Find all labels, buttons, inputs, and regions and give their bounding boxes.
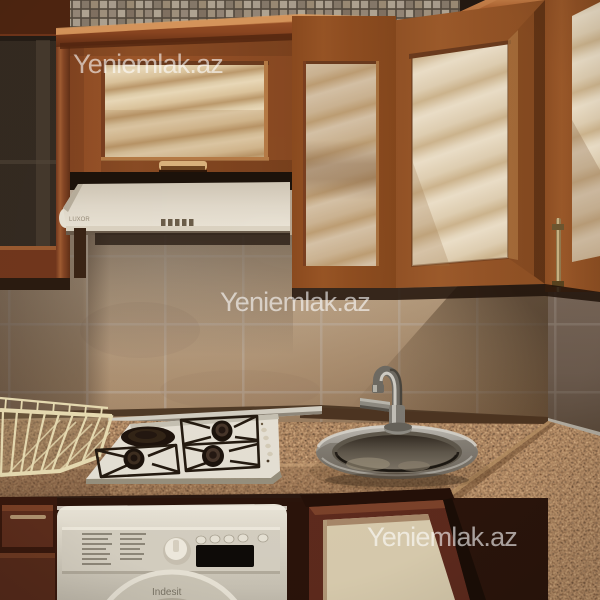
svg-text:Yeniemlak.az: Yeniemlak.az xyxy=(220,287,370,317)
svg-text:Yeniemlak.az: Yeniemlak.az xyxy=(73,49,223,79)
svg-text:Yeniemlak.az: Yeniemlak.az xyxy=(367,522,517,552)
